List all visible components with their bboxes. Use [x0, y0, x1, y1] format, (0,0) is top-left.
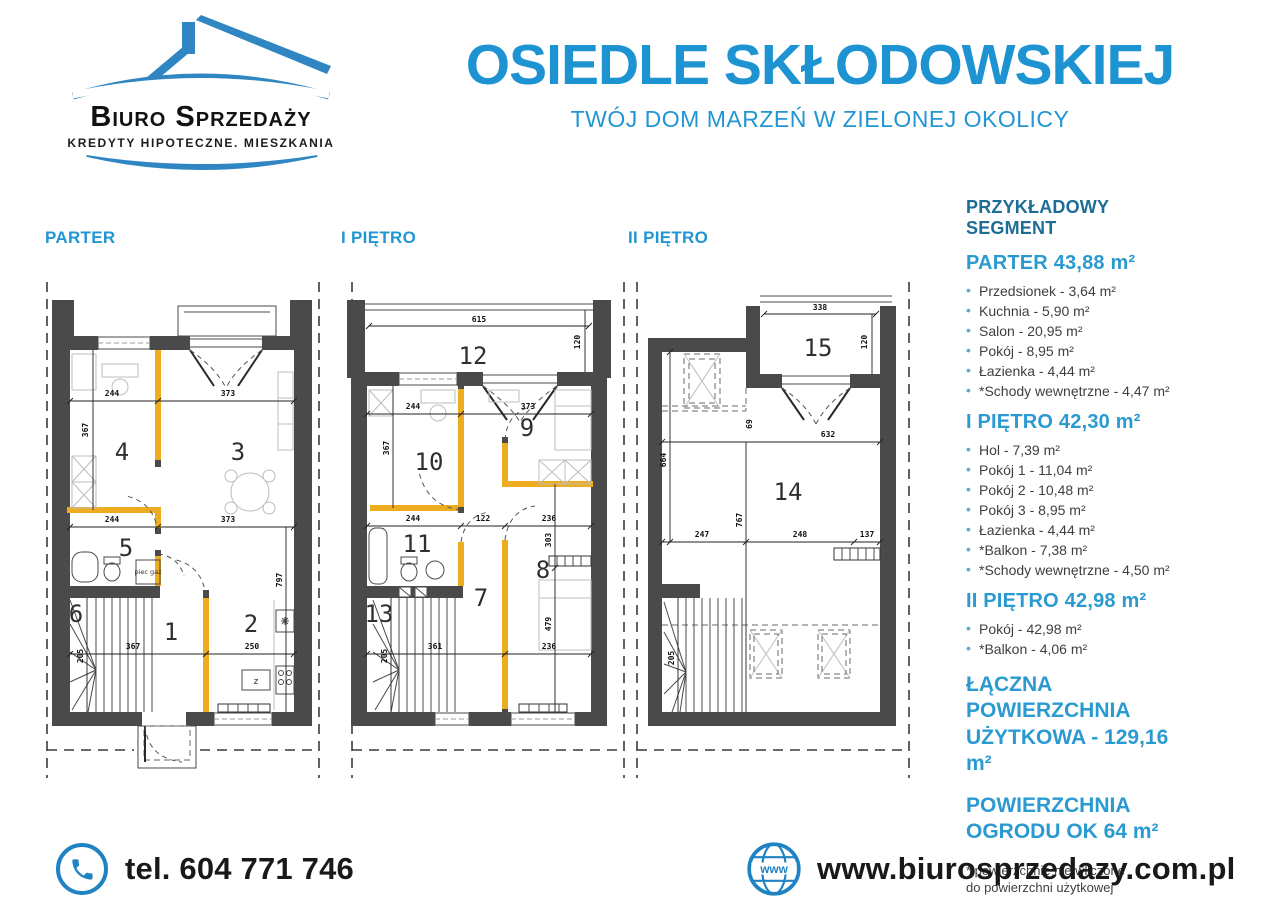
section-heading-pietro2: II PIĘTRO 42,98 m²	[966, 590, 1178, 613]
room-number: 2	[244, 610, 258, 638]
dimensions: 244 373 367 244 373 797 205 367 250	[67, 350, 297, 712]
page-subtitle: TWÓJ DOM MARZEŃ W ZIELONEJ OKOLICY	[430, 106, 1210, 133]
bathroom-fixtures: piec gaz	[72, 552, 162, 584]
list-item: Łazienka - 4,44 m²	[966, 523, 1178, 537]
phone-icon	[54, 841, 110, 897]
section-heading-pietro1: I PIĘTRO 42,30 m²	[966, 411, 1178, 434]
french-door	[782, 376, 850, 424]
balcony: 338 120 15	[760, 296, 892, 374]
room-number: 1	[164, 618, 178, 646]
room-numbers: 14	[774, 478, 803, 506]
dimension-label: 236	[542, 514, 557, 523]
room-numbers: 1 2 3 4 5 6	[69, 438, 258, 646]
sink-label: z	[254, 677, 259, 687]
company-logo: Biuro Sprzedaży KREDYTY HIPOTECZNE. MIES…	[55, 8, 347, 179]
list-item: Przedsionek - 3,64 m²	[966, 284, 1178, 298]
header: OSIEDLE SKŁODOWSKIEJ TWÓJ DOM MARZEŃ W Z…	[430, 36, 1210, 133]
list-item: Pokój 3 - 8,95 m²	[966, 503, 1178, 517]
room-number: 9	[520, 414, 534, 442]
room-list-pietro1: Hol - 7,39 m² Pokój 1 - 11,04 m² Pokój 2…	[966, 443, 1178, 577]
floorplan-parter: piec gaz z	[38, 280, 328, 780]
website-url: www.biurosprzedazy.com.pl	[817, 851, 1235, 887]
stove-label: piec gaz	[134, 568, 162, 576]
dimension-label: 250	[245, 642, 260, 651]
dimension-label: 664	[659, 453, 668, 468]
terrace	[178, 306, 276, 336]
list-item: Salon - 20,95 m²	[966, 324, 1178, 338]
list-item: Pokój - 42,98 m²	[966, 622, 1178, 636]
dimension-label: 479	[544, 617, 553, 632]
dimension-label: 205	[76, 649, 85, 664]
furniture	[72, 354, 293, 514]
room-number: 15	[804, 334, 833, 362]
dimension-label: 767	[735, 513, 744, 528]
list-item: Łazienka - 4,44 m²	[966, 364, 1178, 378]
globe-icon: www	[746, 841, 802, 897]
list-item: Pokój 2 - 10,48 m²	[966, 483, 1178, 497]
dimension-label: 244	[105, 389, 120, 398]
room-number: 8	[536, 556, 550, 584]
list-item: Kuchnia - 5,90 m²	[966, 304, 1178, 318]
dimension-label: 615	[472, 315, 487, 324]
dimension-label: 120	[573, 335, 582, 350]
dimension-label: 122	[476, 514, 491, 523]
dimension-label: 248	[793, 530, 808, 539]
plan-label-pietro1: I PIĘTRO	[341, 228, 416, 248]
radiator	[218, 704, 270, 712]
panel-title: PRZYKŁADOWY SEGMENT	[966, 197, 1178, 239]
room-number: 11	[403, 530, 432, 558]
dimension-label: 632	[821, 430, 836, 439]
property-lines	[47, 282, 319, 778]
dimension-label: 797	[275, 573, 284, 588]
list-item: *Balkon - 4,06 m²	[966, 642, 1178, 656]
room-number: 12	[459, 342, 488, 370]
garden-area: POWIERZCHNIA OGRODU OK 64 m²	[966, 793, 1178, 846]
flyer-page: Biuro Sprzedaży KREDYTY HIPOTECZNE. MIES…	[0, 0, 1280, 905]
room-number: 4	[115, 438, 129, 466]
room-number: 7	[474, 584, 488, 612]
dimension-label: 373	[521, 402, 536, 411]
dimension-label: 69	[745, 419, 754, 429]
balcony: 615 120 12	[347, 300, 611, 378]
logo-roof-icon	[55, 8, 347, 100]
list-item: *Balkon - 7,38 m²	[966, 543, 1178, 557]
floorplan-pietro2: 338 120 15	[628, 280, 918, 780]
room-list-pietro2: Pokój - 42,98 m² *Balkon - 4,06 m²	[966, 622, 1178, 656]
room-number: 13	[365, 600, 394, 628]
dimension-label: 205	[667, 651, 676, 666]
dimension-label: 120	[860, 335, 869, 350]
page-title: OSIEDLE SKŁODOWSKIEJ	[430, 36, 1210, 96]
dimension-label: 137	[860, 530, 875, 539]
garden-area-line1: POWIERZCHNIA	[966, 793, 1178, 819]
dimension-label: 244	[406, 402, 421, 411]
dimension-label: 205	[380, 649, 389, 664]
dimension-label: 373	[221, 515, 236, 524]
logo-name: Biuro Sprzedaży	[55, 103, 347, 132]
list-item: *Schody wewnętrzne - 4,47 m²	[966, 384, 1178, 398]
room-list-parter: Przedsionek - 3,64 m² Kuchnia - 5,90 m² …	[966, 284, 1178, 398]
total-area-line2: UŻYTKOWA - 129,16 m²	[966, 725, 1178, 778]
dimension-label: 361	[428, 642, 443, 651]
list-item: Hol - 7,39 m²	[966, 443, 1178, 457]
logo-swoosh	[55, 150, 347, 174]
room-number: 10	[415, 448, 444, 476]
total-area: ŁĄCZNA POWIERZCHNIA UŻYTKOWA - 129,16 m²	[966, 672, 1178, 777]
phone-number: tel. 604 771 746	[125, 851, 354, 887]
floorplan-pietro1: 615 120 12	[343, 280, 633, 780]
list-item: Pokój 1 - 11,04 m²	[966, 463, 1178, 477]
dimension-label: 244	[105, 515, 120, 524]
total-area-line1: ŁĄCZNA POWIERZCHNIA	[966, 672, 1178, 725]
dimension-label: 367	[126, 642, 141, 651]
logo-tagline: KREDYTY HIPOTECZNE. MIESZKANIA	[55, 136, 347, 150]
room-number: 6	[69, 600, 83, 628]
windows	[98, 337, 272, 725]
dimension-label: 247	[695, 530, 710, 539]
footer-phone: tel. 604 771 746	[54, 841, 354, 897]
plan-label-parter: PARTER	[45, 228, 115, 248]
list-item: Pokój - 8,95 m²	[966, 344, 1178, 358]
dimension-label: 303	[544, 533, 553, 548]
dimension-label: 338	[813, 303, 828, 312]
room-number: 3	[231, 438, 245, 466]
skylight	[684, 354, 720, 408]
list-item: *Schody wewnętrzne - 4,50 m²	[966, 563, 1178, 577]
dimension-label: 367	[81, 423, 90, 438]
section-heading-parter: PARTER 43,88 m²	[966, 252, 1178, 275]
room-number: 5	[119, 534, 133, 562]
summary-panel: PRZYKŁADOWY SEGMENT PARTER 43,88 m² Prze…	[966, 197, 1178, 897]
plan-label-pietro2: II PIĘTRO	[628, 228, 708, 248]
dimension-label: 373	[221, 389, 236, 398]
entrance-porch	[138, 726, 196, 768]
footer-website: www www.biurosprzedazy.com.pl	[746, 841, 1235, 897]
dimension-label: 367	[382, 441, 391, 456]
room-number: 14	[774, 478, 803, 506]
globe-label: www	[759, 862, 788, 876]
walls	[351, 372, 607, 726]
french-door	[190, 350, 262, 388]
roof-windows	[750, 630, 850, 678]
dimension-label: 236	[542, 642, 557, 651]
dimension-label: 244	[406, 514, 421, 523]
